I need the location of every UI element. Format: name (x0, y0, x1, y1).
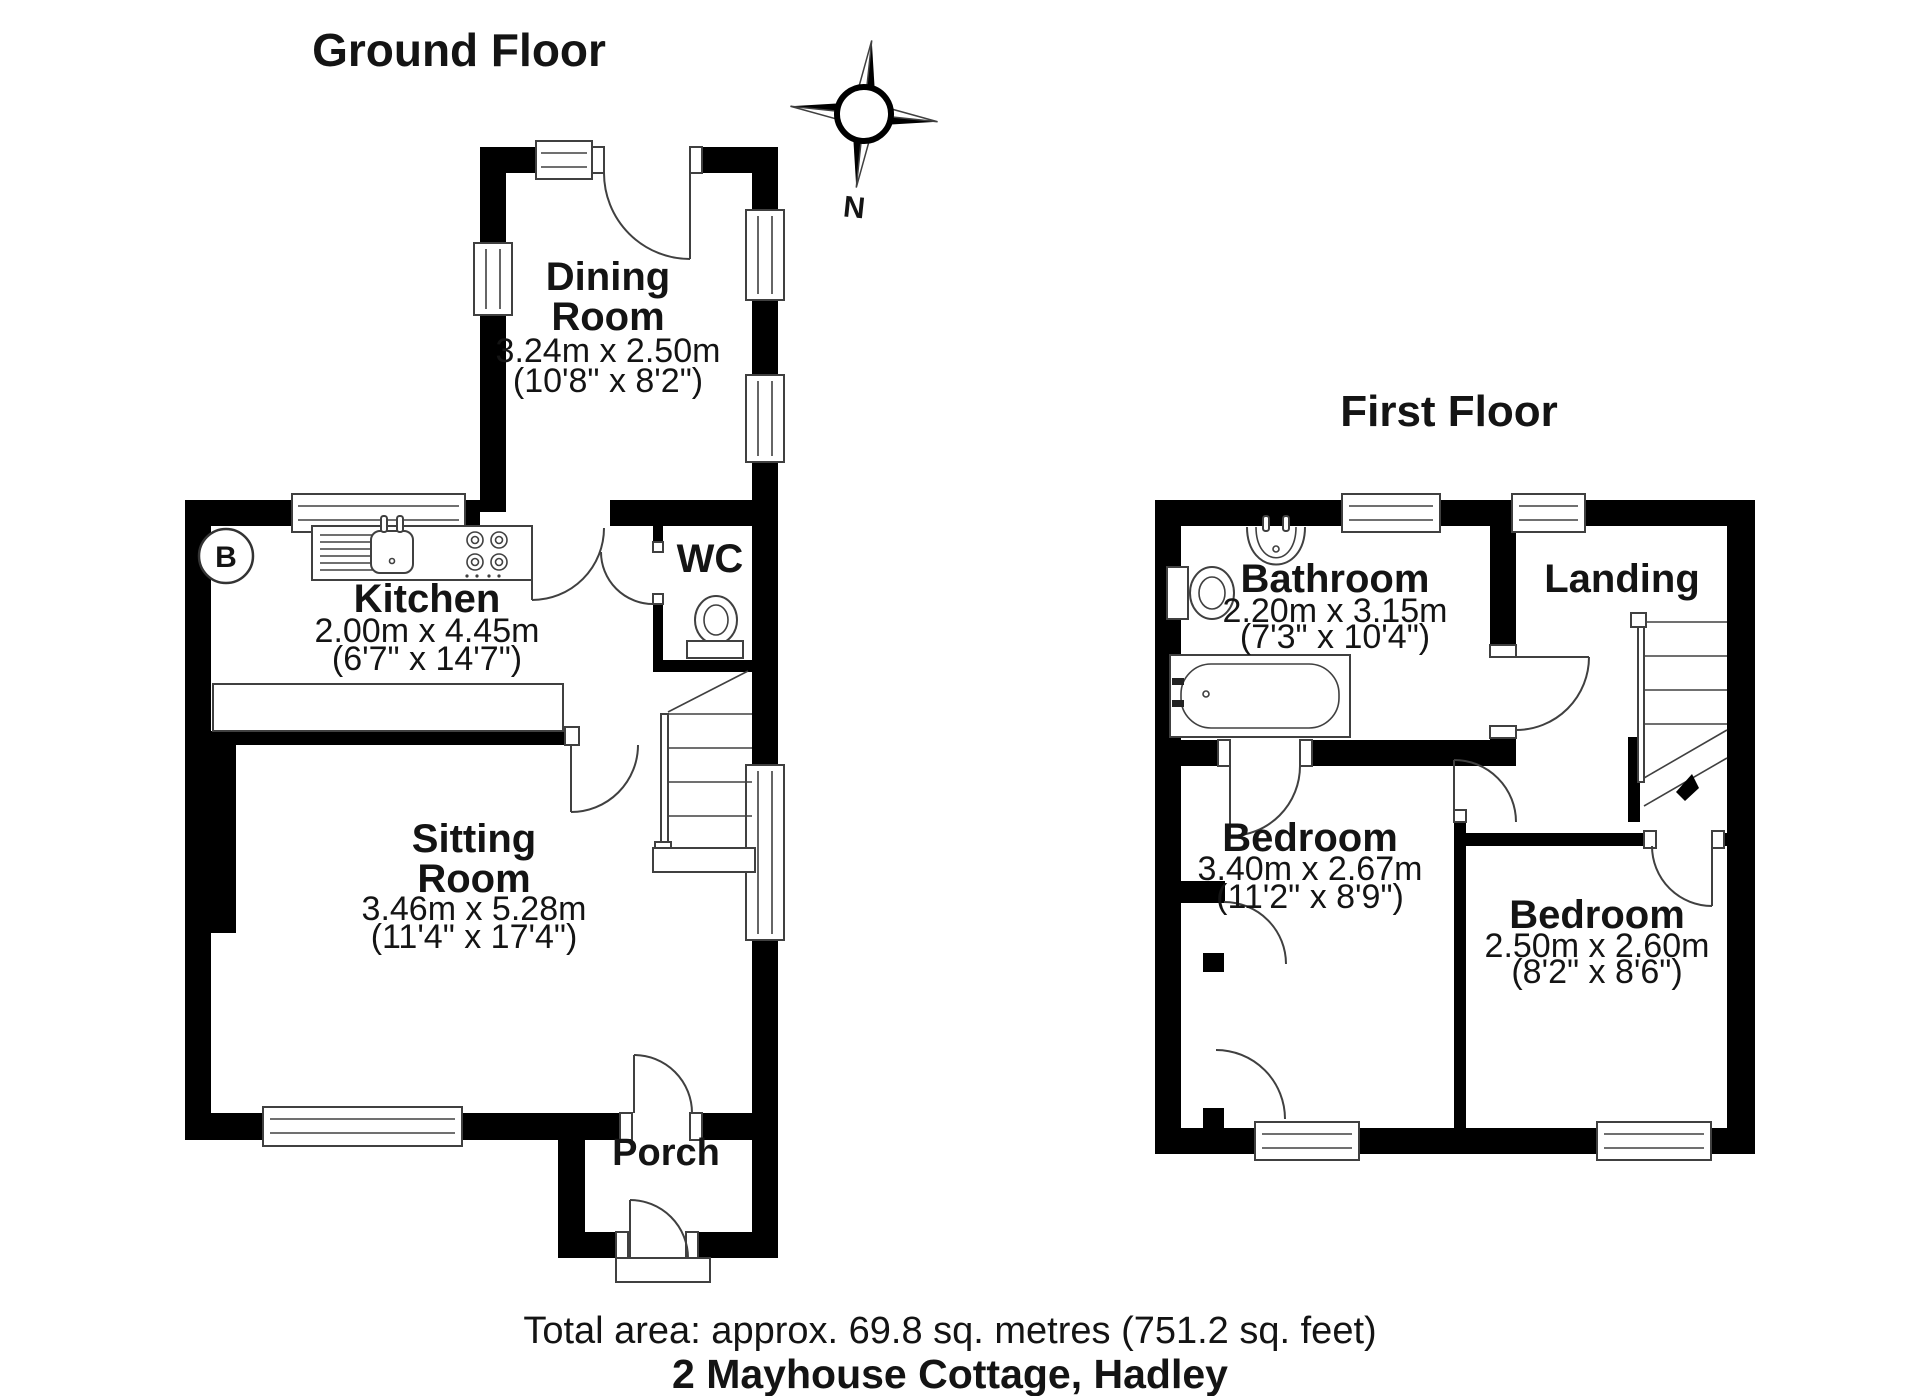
bedroom-left-imperial: (11'2" x 8'9") (1216, 878, 1404, 916)
bathtub-icon (1170, 655, 1350, 737)
stair-handrail (1638, 622, 1644, 782)
ground-floor-stairs (653, 671, 755, 872)
door-jamb (565, 727, 579, 745)
bathroom-imperial: (7'3" x 10'4") (1240, 618, 1430, 656)
wc-divider-stub (653, 526, 663, 542)
bedroom-right-imperial: (8'2" x 8'6") (1511, 953, 1682, 991)
door-jamb (653, 542, 663, 552)
cupboard-door-lower (1216, 1050, 1285, 1119)
landing-top-window (1512, 494, 1585, 532)
bathroom-top-window (1342, 494, 1440, 532)
total-area-text: Total area: approx. 69.8 sq. metres (751… (523, 1310, 1376, 1352)
alcove-stub-b (1203, 953, 1224, 972)
kitchen-units (213, 684, 563, 731)
bathroom-door (1516, 657, 1589, 730)
door-jamb (1712, 831, 1724, 848)
bathroom-bottom-wall (1155, 740, 1516, 766)
wc-toilet-icon (687, 596, 743, 658)
sitting-bottom-window (263, 1107, 462, 1146)
porch-right-wall (752, 1140, 778, 1258)
dining-top-wall-left (480, 147, 536, 173)
dining-right-window-lower (746, 375, 784, 462)
dining-room-imperial: (10'8" x 8'2") (513, 362, 703, 400)
door-jamb (1454, 810, 1466, 822)
bedrooms-divider (1454, 822, 1466, 1128)
hall-sitting-door (571, 745, 638, 812)
dining-right-window-upper (746, 210, 784, 300)
boiler-icon: B (199, 529, 253, 583)
porch-name: Porch (612, 1132, 720, 1174)
dining-room-name-1: Dining (546, 255, 670, 299)
handrail-post (1631, 613, 1646, 627)
dining-top-window (536, 141, 592, 179)
door-jamb (592, 147, 604, 173)
hall-kitchen-door (532, 528, 604, 600)
sitting-porch-door (634, 1055, 692, 1113)
stair-break-notch (1676, 774, 1699, 801)
dining-left-window (474, 243, 512, 315)
bottom-wall-mid (462, 1113, 632, 1140)
wc-name: WC (677, 537, 744, 581)
boiler-label: B (215, 541, 237, 574)
chimney-breast (211, 745, 236, 933)
stair-bottom-step (653, 848, 755, 872)
wc-divider-lower (653, 604, 663, 660)
first-floor-title: First Floor (1340, 387, 1558, 436)
address-text: 2 Mayhouse Cottage, Hadley (672, 1351, 1228, 1396)
porch-entrance-door (630, 1200, 688, 1258)
bedroom-right-window (1597, 1122, 1711, 1160)
first-floor-stairs (1631, 613, 1727, 806)
dining-entry-door (604, 173, 690, 259)
ground-floor-title: Ground Floor (312, 24, 606, 76)
dining-left-wall (480, 147, 506, 512)
bedroom-left-window (1255, 1122, 1359, 1160)
compass-rose-icon: N (779, 33, 946, 232)
kitchen-sitting-divider (211, 731, 565, 745)
bottom-wall-left (185, 1113, 263, 1140)
landing-name: Landing (1544, 557, 1700, 601)
door-jamb (616, 1232, 628, 1258)
kitchen-imperial: (6'7" x 14'7") (332, 640, 522, 678)
alcove-stub-c (1203, 1108, 1224, 1128)
compass-north-label: N (842, 190, 867, 225)
ff-top-wall (1155, 500, 1755, 526)
kitchen-counter (312, 526, 532, 580)
wc-door (601, 552, 653, 604)
left-outer-wall (185, 500, 211, 1140)
door-jamb (1218, 740, 1230, 766)
door-jamb (1300, 740, 1312, 766)
stair-handrail (661, 714, 668, 848)
sitting-room-imperial: (11'4" x 17'4") (371, 918, 578, 956)
door-jamb (1644, 831, 1656, 848)
ff-right-wall (1727, 500, 1755, 1154)
porch-step (616, 1258, 710, 1282)
floorplan-image: Ground Floor First Floor N (0, 0, 1920, 1396)
door-jamb (653, 594, 663, 604)
sitting-room-name-1: Sitting (412, 817, 536, 861)
door-jamb (1490, 726, 1516, 738)
wc-floor-wall (653, 660, 752, 672)
door-jamb (690, 147, 702, 173)
door-jamb (1490, 645, 1516, 657)
porch-bottom-wall-left (558, 1232, 616, 1258)
